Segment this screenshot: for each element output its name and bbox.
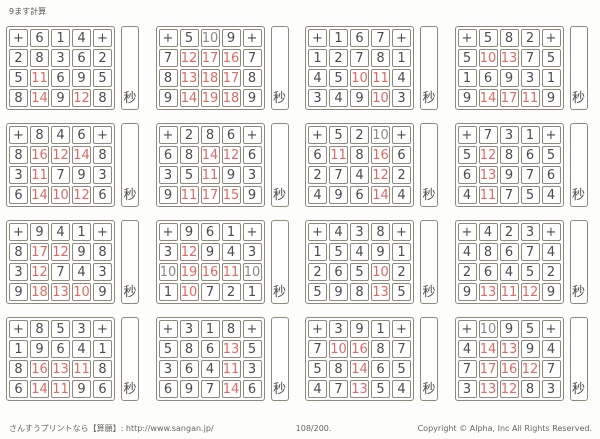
table-row: 16931 <box>458 69 561 87</box>
footer-copyright: Copyright © Alpha, Inc All Rights Reserv… <box>331 424 592 433</box>
seconds-label: 秒 <box>123 184 136 203</box>
column-header-cell: 8 <box>500 29 519 47</box>
row-header-cell: 5 <box>159 340 178 358</box>
answer-cell: 3 <box>51 49 70 67</box>
row-header-cell: 2 <box>458 263 477 281</box>
column-header-cell: 8 <box>371 223 390 241</box>
seconds-label: 秒 <box>273 281 286 300</box>
answer-cell: 9 <box>201 243 220 261</box>
answer-cell: 9 <box>222 166 241 184</box>
row-repeat-cell: 3 <box>93 166 112 184</box>
row-header-cell: 6 <box>458 166 477 184</box>
table-row: 312743 <box>9 263 112 281</box>
answer-cell: 19 <box>180 263 199 281</box>
row-header-cell: 6 <box>308 146 327 164</box>
answer-cell: 18 <box>201 69 220 87</box>
answer-cell: 12 <box>72 186 91 204</box>
row-header-cell: 4 <box>458 243 477 261</box>
seconds-label: 秒 <box>572 184 585 203</box>
calc-table: +853+19641816131186141196 <box>6 317 115 401</box>
calc-block: +167+127814510114349103秒 <box>305 26 443 110</box>
calc-table: +286+681412635119391117159 <box>156 123 265 207</box>
answer-cell: 8 <box>180 340 199 358</box>
row-repeat-cell: 9 <box>93 283 112 301</box>
answer-cell: 2 <box>329 49 348 67</box>
plus-operator-cell: + <box>392 126 411 144</box>
row-repeat-cell: 8 <box>93 360 112 378</box>
answer-cell: 9 <box>72 380 91 398</box>
answer-cell: 12 <box>500 380 519 398</box>
table-row: 364113 <box>159 360 262 378</box>
seconds-box: 秒 <box>271 26 289 110</box>
answer-cell: 9 <box>371 243 390 261</box>
answer-cell: 16 <box>500 360 519 378</box>
row-repeat-cell: 4 <box>392 186 411 204</box>
seconds-box: 秒 <box>271 220 289 304</box>
table-row: 6141196 <box>9 380 112 398</box>
seconds-box: 秒 <box>121 123 139 207</box>
calc-block: +286+681412635119391117159秒 <box>156 123 294 207</box>
seconds-label: 秒 <box>422 87 435 106</box>
row-header-cell: 10 <box>159 263 178 281</box>
column-header-cell: 1 <box>201 320 220 338</box>
table-row: 265102 <box>308 263 411 281</box>
answer-cell: 7 <box>521 166 540 184</box>
answer-cell: 11 <box>51 380 70 398</box>
column-header-cell: 5 <box>180 29 199 47</box>
table-row: +1095+ <box>458 320 561 338</box>
answer-cell: 6 <box>51 69 70 87</box>
answer-cell: 8 <box>479 243 498 261</box>
answer-cell: 14 <box>201 146 220 164</box>
answer-cell: 10 <box>371 263 390 281</box>
answer-cell: 12 <box>521 360 540 378</box>
calc-table: +5210+6118166274122496144 <box>305 123 414 207</box>
seconds-label: 秒 <box>273 184 286 203</box>
answer-cell: 11 <box>371 69 390 87</box>
answer-cell: 11 <box>30 69 49 87</box>
answer-cell: 6 <box>51 340 70 358</box>
row-repeat-cell: 6 <box>392 146 411 164</box>
table-row: 8149128 <box>9 89 112 107</box>
row-repeat-cell: 9 <box>542 89 561 107</box>
answer-cell: 10 <box>329 340 348 358</box>
plus-operator-cell: + <box>243 320 262 338</box>
calc-block: +846+8161214831179361410126秒 <box>6 123 144 207</box>
answer-cell: 7 <box>51 166 70 184</box>
table-row: 697146 <box>159 380 262 398</box>
column-header-cell: 4 <box>479 223 498 241</box>
column-header-cell: 9 <box>350 320 369 338</box>
table-row: +731+ <box>458 126 561 144</box>
table-row: 512865 <box>458 146 561 164</box>
answer-cell: 5 <box>521 263 540 281</box>
column-header-cell: 1 <box>329 29 348 47</box>
answer-cell: 5 <box>180 166 199 184</box>
row-header-cell: 8 <box>9 360 28 378</box>
seconds-label: 秒 <box>572 378 585 397</box>
table-row: 15491 <box>308 243 411 261</box>
seconds-box: 秒 <box>420 26 438 110</box>
seconds-box: 秒 <box>420 123 438 207</box>
column-header-cell: 5 <box>51 320 70 338</box>
column-header-cell: 5 <box>329 126 348 144</box>
table-row: +318+ <box>159 320 262 338</box>
table-row: 5101375 <box>458 49 561 67</box>
table-row: 91813109 <box>9 283 112 301</box>
table-row: +167+ <box>308 29 411 47</box>
answer-cell: 3 <box>521 69 540 87</box>
answer-cell: 13 <box>371 283 390 301</box>
column-header-cell: 2 <box>500 223 519 241</box>
plus-operator-cell: + <box>542 29 561 47</box>
answer-cell: 14 <box>479 340 498 358</box>
answer-cell: 16 <box>30 360 49 378</box>
row-header-cell: 3 <box>159 360 178 378</box>
answer-cell: 11 <box>180 186 199 204</box>
row-header-cell: 3 <box>9 263 28 281</box>
table-row: 7101687 <box>308 340 411 358</box>
column-header-cell: 9 <box>30 223 49 241</box>
table-row: +286+ <box>159 126 262 144</box>
answer-cell: 7 <box>51 263 70 281</box>
row-header-cell: 8 <box>9 146 28 164</box>
answer-cell: 10 <box>479 49 498 67</box>
row-repeat-cell: 4 <box>392 380 411 398</box>
calc-table: +1095+4141394717161273131283 <box>455 317 564 401</box>
table-row: 91417119 <box>458 89 561 107</box>
column-header-cell: 6 <box>30 29 49 47</box>
row-header-cell: 3 <box>9 166 28 184</box>
table-row: 71716127 <box>458 360 561 378</box>
row-repeat-cell: 3 <box>542 380 561 398</box>
answer-cell: 6 <box>180 360 199 378</box>
seconds-label: 秒 <box>273 378 286 397</box>
table-row: 8171298 <box>9 243 112 261</box>
row-header-cell: 6 <box>159 146 178 164</box>
row-header-cell: 7 <box>308 340 327 358</box>
row-header-cell: 6 <box>159 380 178 398</box>
calc-block: +438+15491265102598135秒 <box>305 220 443 304</box>
table-row: 274122 <box>308 166 411 184</box>
answer-cell: 14 <box>30 186 49 204</box>
table-row: 81613118 <box>9 360 112 378</box>
answer-cell: 13 <box>51 283 70 301</box>
table-row: 613976 <box>458 166 561 184</box>
calc-block: +423+486742645291311129秒 <box>455 220 593 304</box>
table-row: 311793 <box>9 166 112 184</box>
row-repeat-cell: 7 <box>243 49 262 67</box>
answer-cell: 6 <box>371 360 390 378</box>
table-row: 349103 <box>308 89 411 107</box>
row-header-cell: 5 <box>308 360 327 378</box>
answer-cell: 8 <box>521 380 540 398</box>
column-header-cell: 8 <box>30 320 49 338</box>
calc-table: +941+817129831274391813109 <box>6 220 115 304</box>
row-header-cell: 8 <box>9 89 28 107</box>
row-header-cell: 5 <box>308 283 327 301</box>
column-header-cell: 9 <box>222 29 241 47</box>
answer-cell: 19 <box>201 89 220 107</box>
row-repeat-cell: 1 <box>392 49 411 67</box>
answer-cell: 12 <box>180 49 199 67</box>
row-header-cell: 3 <box>308 89 327 107</box>
answer-cell: 10 <box>371 89 390 107</box>
seconds-box: 秒 <box>570 220 588 304</box>
row-repeat-cell: 3 <box>243 360 262 378</box>
answer-cell: 8 <box>30 49 49 67</box>
answer-cell: 4 <box>329 89 348 107</box>
seconds-label: 秒 <box>123 378 136 397</box>
table-row: 6118166 <box>308 146 411 164</box>
answer-cell: 7 <box>521 49 540 67</box>
row-header-cell: 8 <box>159 69 178 87</box>
seconds-label: 秒 <box>422 184 435 203</box>
column-header-cell: 2 <box>350 126 369 144</box>
answer-cell: 5 <box>350 263 369 281</box>
answer-cell: 11 <box>201 166 220 184</box>
page-title: 9ます計算 <box>0 0 600 26</box>
plus-operator-cell: + <box>9 320 28 338</box>
row-header-cell: 9 <box>458 89 477 107</box>
table-row: 4510114 <box>308 69 411 87</box>
plus-operator-cell: + <box>308 320 327 338</box>
row-header-cell: 9 <box>159 89 178 107</box>
calc-block: +941+817129831274391813109秒 <box>6 220 144 304</box>
answer-cell: 8 <box>500 146 519 164</box>
row-repeat-cell: 1 <box>542 69 561 87</box>
table-row: 81612148 <box>9 146 112 164</box>
plus-operator-cell: + <box>458 126 477 144</box>
table-row: +853+ <box>9 320 112 338</box>
answer-cell: 10 <box>180 283 199 301</box>
row-repeat-cell: 5 <box>392 360 411 378</box>
table-row: 91117159 <box>159 186 262 204</box>
table-row: 81318178 <box>159 69 262 87</box>
answer-cell: 13 <box>479 283 498 301</box>
answer-cell: 4 <box>201 360 220 378</box>
answer-cell: 15 <box>222 186 241 204</box>
column-header-cell: 9 <box>500 320 519 338</box>
plus-operator-cell: + <box>159 320 178 338</box>
column-header-cell: 7 <box>371 29 390 47</box>
answer-cell: 17 <box>201 49 220 67</box>
calc-block: +853+19641816131186141196秒 <box>6 317 144 401</box>
table-row: 581465 <box>308 360 411 378</box>
column-header-cell: 6 <box>222 126 241 144</box>
answer-cell: 4 <box>72 263 91 281</box>
plus-operator-cell: + <box>159 29 178 47</box>
answer-cell: 9 <box>329 283 348 301</box>
row-header-cell: 2 <box>308 166 327 184</box>
calc-block: +5109+712171678131817891419189秒 <box>156 26 294 110</box>
row-repeat-cell: 8 <box>93 146 112 164</box>
plus-operator-cell: + <box>392 320 411 338</box>
calc-table: +438+15491265102598135 <box>305 220 414 304</box>
answer-cell: 6 <box>479 263 498 281</box>
row-header-cell: 8 <box>9 243 28 261</box>
answer-cell: 6 <box>329 263 348 281</box>
row-header-cell: 1 <box>159 283 178 301</box>
table-row: +941+ <box>9 223 112 241</box>
table-row: 3131283 <box>458 380 561 398</box>
table-row: 351193 <box>159 166 262 184</box>
answer-cell: 7 <box>500 186 519 204</box>
column-header-cell: 4 <box>72 29 91 47</box>
table-row: +5210+ <box>308 126 411 144</box>
column-header-cell: 5 <box>479 29 498 47</box>
answer-cell: 9 <box>180 380 199 398</box>
row-repeat-cell: 6 <box>542 166 561 184</box>
row-repeat-cell: 6 <box>243 380 262 398</box>
answer-cell: 13 <box>350 380 369 398</box>
table-row: 471354 <box>308 380 411 398</box>
answer-cell: 10 <box>72 283 91 301</box>
table-row: +423+ <box>458 223 561 241</box>
table-row: 586135 <box>159 340 262 358</box>
plus-operator-cell: + <box>9 223 28 241</box>
footer: さんすうプリントなら【算願】: http://www.sangan.jp/ 10… <box>0 423 600 439</box>
row-repeat-cell: 5 <box>392 283 411 301</box>
plus-operator-cell: + <box>308 126 327 144</box>
row-header-cell: 4 <box>308 186 327 204</box>
answer-cell: 7 <box>329 166 348 184</box>
seconds-label: 秒 <box>422 281 435 300</box>
table-row: +614+ <box>9 29 112 47</box>
plus-operator-cell: + <box>458 223 477 241</box>
column-header-cell: 3 <box>500 126 519 144</box>
answer-cell: 9 <box>72 166 91 184</box>
seconds-box: 秒 <box>271 123 289 207</box>
table-row: 411754 <box>458 186 561 204</box>
row-header-cell: 7 <box>159 49 178 67</box>
calc-block: +318+586135364113697146秒 <box>156 317 294 401</box>
table-row: +582+ <box>458 29 561 47</box>
answer-cell: 14 <box>350 360 369 378</box>
row-repeat-cell: 4 <box>542 340 561 358</box>
row-header-cell: 9 <box>9 283 28 301</box>
calc-block: +5210+6118166274122496144秒 <box>305 123 443 207</box>
footer-page-number: 108/200. <box>296 424 332 433</box>
answer-cell: 8 <box>350 283 369 301</box>
column-header-cell: 4 <box>51 223 70 241</box>
calc-table: +423+486742645291311129 <box>455 220 564 304</box>
answer-cell: 5 <box>371 380 390 398</box>
answer-cell: 11 <box>30 166 49 184</box>
row-repeat-cell: 5 <box>542 146 561 164</box>
answer-cell: 17 <box>479 360 498 378</box>
answer-cell: 9 <box>329 186 348 204</box>
table-row: +391+ <box>308 320 411 338</box>
row-repeat-cell: 4 <box>542 186 561 204</box>
answer-cell: 12 <box>72 89 91 107</box>
plus-operator-cell: + <box>243 126 262 144</box>
table-row: 312943 <box>159 243 262 261</box>
answer-cell: 5 <box>521 186 540 204</box>
answer-cell: 16 <box>30 146 49 164</box>
answer-cell: 9 <box>521 340 540 358</box>
row-header-cell: 6 <box>9 380 28 398</box>
answer-cell: 8 <box>371 340 390 358</box>
plus-operator-cell: + <box>93 126 112 144</box>
answer-cell: 13 <box>222 340 241 358</box>
column-header-cell: 7 <box>479 126 498 144</box>
answer-cell: 12 <box>51 146 70 164</box>
row-repeat-cell: 5 <box>93 69 112 87</box>
table-row: 4141394 <box>458 340 561 358</box>
table-row: 511695 <box>9 69 112 87</box>
table-row: 1019161110 <box>159 263 262 281</box>
row-header-cell: 2 <box>9 49 28 67</box>
answer-cell: 7 <box>329 380 348 398</box>
answer-cell: 12 <box>30 263 49 281</box>
answer-cell: 12 <box>479 146 498 164</box>
answer-cell: 14 <box>72 146 91 164</box>
answer-cell: 12 <box>521 283 540 301</box>
row-repeat-cell: 2 <box>392 166 411 184</box>
answer-cell: 6 <box>201 340 220 358</box>
answer-cell: 6 <box>479 69 498 87</box>
calc-table: +167+127814510114349103 <box>305 26 414 110</box>
row-repeat-cell: 2 <box>93 49 112 67</box>
answer-cell: 4 <box>350 243 369 261</box>
seconds-label: 秒 <box>422 378 435 397</box>
row-repeat-cell: 9 <box>243 186 262 204</box>
calc-block: +961+3129431019161110110721秒 <box>156 220 294 304</box>
table-row: +438+ <box>308 223 411 241</box>
answer-cell: 13 <box>500 340 519 358</box>
row-repeat-cell: 8 <box>243 69 262 87</box>
row-header-cell: 4 <box>308 69 327 87</box>
answer-cell: 7 <box>350 49 369 67</box>
answer-cell: 5 <box>329 243 348 261</box>
column-header-cell: 3 <box>350 223 369 241</box>
calc-block: +614+283625116958149128秒 <box>6 26 144 110</box>
answer-cell: 8 <box>180 146 199 164</box>
row-header-cell: 7 <box>458 360 477 378</box>
answer-cell: 11 <box>329 146 348 164</box>
calc-table: +846+8161214831179361410126 <box>6 123 115 207</box>
plus-operator-cell: + <box>93 320 112 338</box>
row-repeat-cell: 7 <box>392 340 411 358</box>
seconds-label: 秒 <box>572 281 585 300</box>
answer-cell: 7 <box>521 243 540 261</box>
seconds-label: 秒 <box>123 87 136 106</box>
grid-area: +614+283625116958149128秒+5109+7121716781… <box>0 26 600 401</box>
row-repeat-cell: 5 <box>542 49 561 67</box>
row-repeat-cell: 3 <box>243 243 262 261</box>
answer-cell: 6 <box>350 186 369 204</box>
column-header-cell: 10 <box>371 126 390 144</box>
row-header-cell: 4 <box>308 380 327 398</box>
table-row: +5109+ <box>159 29 262 47</box>
answer-cell: 10 <box>51 186 70 204</box>
calc-table: +614+283625116958149128 <box>6 26 115 110</box>
answer-cell: 13 <box>479 380 498 398</box>
row-repeat-cell: 8 <box>93 243 112 261</box>
table-row: 26452 <box>458 263 561 281</box>
row-repeat-cell: 2 <box>542 263 561 281</box>
answer-cell: 2 <box>222 283 241 301</box>
seconds-label: 秒 <box>273 87 286 106</box>
answer-cell: 9 <box>72 69 91 87</box>
answer-cell: 12 <box>222 146 241 164</box>
answer-cell: 13 <box>180 69 199 87</box>
column-header-cell: 2 <box>521 29 540 47</box>
plus-operator-cell: + <box>458 29 477 47</box>
column-header-cell: 4 <box>329 223 348 241</box>
answer-cell: 9 <box>500 166 519 184</box>
